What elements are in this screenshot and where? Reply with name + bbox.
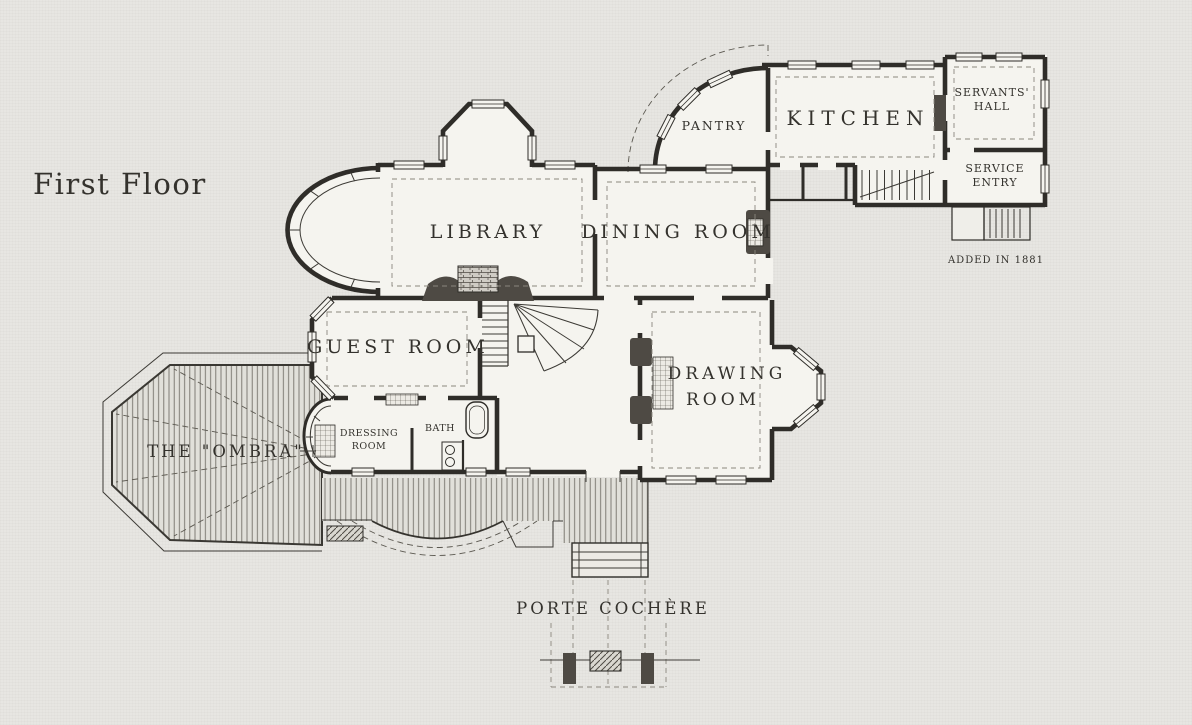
label-ombra: THE "OMBRA" [147, 442, 305, 461]
label-pantry: PANTRY [682, 118, 747, 133]
label-dining-room: DINING ROOM [581, 221, 775, 243]
page-title: First Floor [33, 167, 207, 201]
label-porte-cochere: PORTE COCHÈRE [516, 598, 710, 618]
floor-plan-drawing: First Floor LIBRARY DINING ROOM KITCHEN … [0, 0, 1192, 725]
label-drawing-room-1: DRAWING [668, 364, 787, 384]
label-dressing-room-2: ROOM [352, 441, 386, 452]
label-service-entry-1: SERVICE [965, 162, 1024, 175]
drawing-chimney-lower [630, 396, 652, 424]
label-bath: BATH [425, 423, 455, 434]
servants-chimney [934, 95, 946, 131]
label-drawing-room-2: ROOM [686, 390, 760, 410]
floor-plan-page: First Floor LIBRARY DINING ROOM KITCHEN … [0, 0, 1192, 725]
guest-hearth [386, 394, 418, 405]
porte-cochere-footprint [540, 580, 700, 687]
label-dressing-room-1: DRESSING [340, 428, 398, 439]
library-hearth [458, 266, 498, 292]
label-servants-hall-2: HALL [974, 100, 1010, 113]
label-library: LIBRARY [430, 221, 546, 243]
porte-cochere-steps [572, 543, 648, 577]
label-kitchen: KITCHEN [786, 106, 929, 130]
label-guest-room: GUEST ROOM [307, 336, 489, 358]
carriage-block [590, 651, 621, 671]
side-step [327, 526, 363, 541]
label-service-entry-2: ENTRY [972, 176, 1017, 189]
porte-post [641, 653, 654, 684]
label-added-1881: ADDED IN 1881 [947, 255, 1044, 266]
service-entry-steps [952, 207, 1030, 240]
drawing-chimney-upper [630, 338, 652, 366]
porte-post [563, 653, 576, 684]
dressing-tower-window [315, 425, 335, 457]
label-servants-hall-1: SERVANTS' [954, 86, 1029, 99]
